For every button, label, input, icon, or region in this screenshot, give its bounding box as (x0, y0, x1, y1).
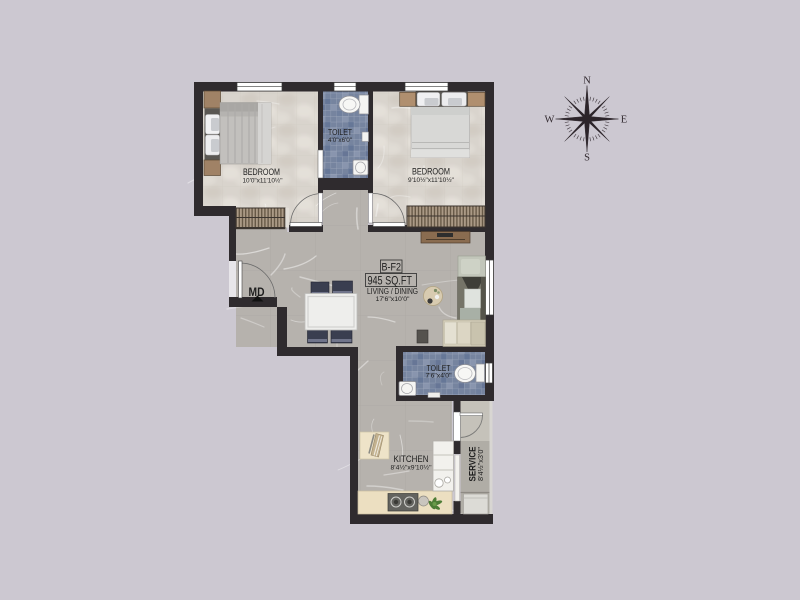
svg-text:W: W (545, 115, 555, 126)
svg-text:7'6"x4'0": 7'6"x4'0" (426, 374, 452, 380)
svg-text:LIVING / DINING: LIVING / DINING (367, 287, 418, 296)
svg-text:4'0"x6'0": 4'0"x6'0" (328, 138, 352, 144)
svg-text:E: E (621, 115, 627, 126)
svg-text:KITCHEN: KITCHEN (394, 454, 429, 464)
svg-text:8'4½"x3'0": 8'4½"x3'0" (477, 446, 485, 481)
svg-text:BEDROOM: BEDROOM (412, 167, 450, 177)
svg-text:TOILET: TOILET (427, 364, 451, 373)
svg-text:945 SQ.FT: 945 SQ.FT (367, 273, 412, 287)
svg-text:S: S (584, 153, 590, 164)
svg-text:8'4½"x9'10½": 8'4½"x9'10½" (391, 464, 433, 472)
svg-text:B-F2: B-F2 (382, 262, 402, 274)
svg-text:TOILET: TOILET (328, 128, 352, 137)
svg-text:10'0"x11'10½": 10'0"x11'10½" (243, 177, 284, 185)
svg-text:17'6"x10'0": 17'6"x10'0" (376, 296, 411, 303)
svg-text:BEDROOM: BEDROOM (243, 167, 280, 177)
svg-text:N: N (583, 76, 591, 87)
svg-text:9'10½"x11'10½": 9'10½"x11'10½" (408, 176, 455, 184)
